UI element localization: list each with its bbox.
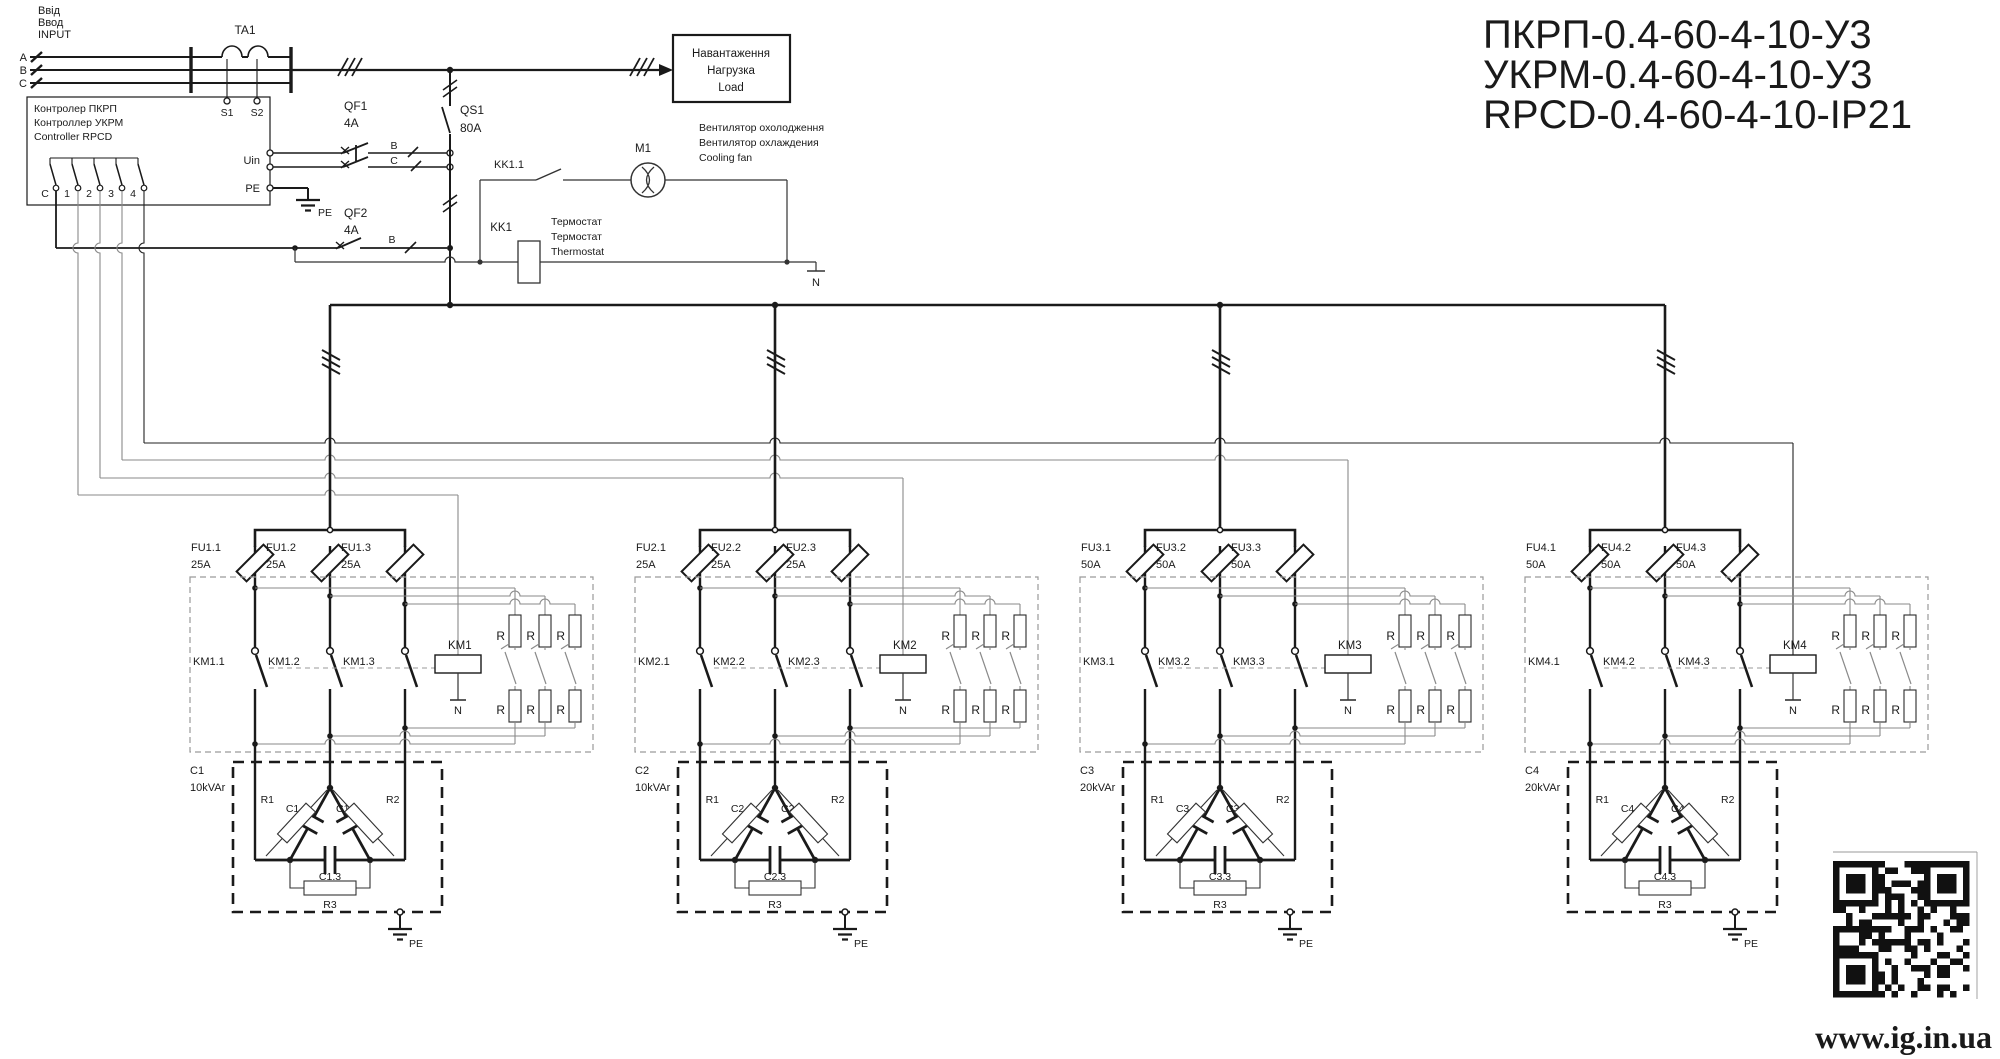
contact-blade: [406, 655, 417, 687]
terminal-2: [97, 185, 103, 191]
capacitor-lead: [759, 788, 775, 817]
terminal-circle: [1217, 648, 1224, 655]
schematic-page: Ввід Ввод INPUT A B C TA1 S1 S2 Контроле…: [0, 0, 2000, 1059]
contact-label: KM1.3: [343, 656, 375, 668]
resistor-tap-line: [1665, 591, 1880, 596]
load-label-ru: Нагрузка: [707, 65, 755, 77]
junction-dot: [772, 733, 778, 739]
discharge-resistor-label: R1: [1151, 794, 1165, 806]
resistor-label: R: [1386, 629, 1395, 643]
fuse-rating: 50A: [1676, 559, 1696, 571]
contact-label: KM2.1: [638, 656, 670, 668]
terminal-circle: [397, 909, 403, 915]
qs1-blade: [442, 107, 450, 133]
pe-label: PE: [854, 938, 868, 950]
r3-label: R3: [1213, 899, 1227, 911]
contact-label: KM2.2: [713, 656, 745, 668]
out-c-label: C: [41, 188, 49, 200]
breaker-qf2: QF2 4A B: [56, 191, 447, 253]
terminal-circle: [327, 527, 332, 532]
junction-dot: [1587, 741, 1593, 747]
resistor-r-top: [1399, 615, 1411, 647]
contact-label: KM3.3: [1233, 656, 1265, 668]
fuse-label: FU4.1: [1526, 542, 1556, 554]
bank-power: 20kVAr: [1080, 782, 1116, 794]
junction-dot: [1737, 725, 1743, 731]
aux-contact-tick: [1866, 644, 1874, 649]
qs1-label: QS1: [460, 103, 484, 117]
qs1-rating: 80A: [460, 121, 481, 135]
aux-contact-tick: [1896, 644, 1904, 649]
resistor-label: R: [526, 703, 535, 717]
resistor-label: R: [971, 703, 980, 717]
aux-contact-blade: [1870, 652, 1881, 684]
coil-KM2: [880, 655, 926, 673]
capacitor-C2.3-plates: [770, 846, 780, 874]
controller-name-uk: Контролер ПКРП: [34, 103, 117, 115]
bank-power: 20kVAr: [1525, 782, 1561, 794]
thermostat-fan-circuit: N KK1 Термостат Термостат Thermostat KK1…: [295, 122, 825, 289]
resistor-return-line: [1145, 739, 1405, 744]
controller-box: Контролер ПКРП Контроллер УКРМ Controlle…: [27, 97, 332, 219]
aux-contact-blade: [565, 652, 576, 684]
resistor-label: R: [496, 703, 505, 717]
contactor-module-outline: [190, 577, 593, 752]
fuse-label: FU2.3: [786, 542, 816, 554]
resistor-r-bottom: [1844, 690, 1856, 722]
resistor-r-bottom: [1429, 690, 1441, 722]
input-section: Ввід Ввод INPUT A B C TA1 S1 S2: [19, 5, 291, 119]
control-wire-1: [73, 191, 458, 655]
pe-label: PE: [409, 938, 423, 950]
qf1-rating: 4A: [344, 116, 359, 130]
fuse-rating: 25A: [191, 559, 211, 571]
coil-KM3: [1325, 655, 1371, 673]
resistor-R2: [1234, 803, 1272, 843]
control-wire-2: [95, 191, 903, 655]
ct-leads: [227, 59, 257, 98]
bank-label: C2: [635, 765, 649, 777]
contactor-module-outline: [1525, 577, 1928, 752]
junction-dot: [1292, 725, 1298, 731]
coil-label: KM1: [448, 640, 472, 652]
fan-label-uk: Вентилятор охолодження: [699, 122, 824, 134]
contact-label: KM3.1: [1083, 656, 1115, 668]
contact-blade: [701, 655, 712, 687]
qr-code: [1833, 861, 1970, 998]
resistor-tap-line: [1220, 591, 1435, 596]
thermostat-label-en: Thermostat: [551, 246, 604, 258]
resistor-label: R: [1416, 703, 1425, 717]
terminal-circle: [327, 648, 334, 655]
qf1-phase-b-label: B: [390, 140, 397, 152]
thermostat-kk1: [518, 241, 540, 283]
fuse-label: FU2.2: [711, 542, 741, 554]
kk1-label: KK1: [490, 222, 512, 234]
title-block: ПКРП-0.4-60-4-10-У3 УКРМ-0.4-60-4-10-У3 …: [1483, 13, 1912, 137]
resistor-return-line: [775, 731, 990, 736]
branch-2: FU2.125AFU2.225AFU2.325AKM2.1KM2.2KM2.3K…: [635, 305, 1038, 950]
load-label-en: Load: [718, 82, 744, 94]
resistor-R2: [1679, 803, 1717, 843]
resistor-R3: [304, 881, 356, 895]
aux-contact-tick: [501, 644, 509, 649]
branch-1: FU1.125AFU1.225AFU1.325AKM1.1KM1.2KM1.3K…: [190, 305, 593, 950]
controller-output-blades: [50, 164, 144, 185]
fuse-label: FU4.3: [1676, 542, 1706, 554]
resistor-label: R: [556, 703, 565, 717]
resistor-R2: [789, 803, 827, 843]
bank-label: C3: [1080, 765, 1094, 777]
terminal-3: [119, 185, 125, 191]
contact-label: KM2.3: [788, 656, 820, 668]
terminal-circle: [847, 648, 854, 655]
terminal-circle: [1587, 648, 1594, 655]
fuse-label: FU3.2: [1156, 542, 1186, 554]
aux-contact-tick: [946, 644, 954, 649]
aux-contact-blade: [950, 652, 961, 684]
uin-terminal-2: [267, 164, 273, 170]
qf2-rating: 4A: [344, 223, 359, 237]
capacitor-lead: [314, 788, 330, 817]
aux-contact-tick: [561, 644, 569, 649]
fan-label-en: Cooling fan: [699, 152, 752, 164]
contact-blade: [1741, 655, 1752, 687]
resistor-R2: [344, 803, 382, 843]
fan-label-ru: Вентилятор охлаждения: [699, 137, 819, 149]
resistor-tap-line: [775, 591, 990, 596]
resistor-r-bottom: [954, 690, 966, 722]
discharge-resistor-label: R1: [261, 794, 275, 806]
uin-label: Uin: [243, 155, 260, 167]
resistor-label: R: [1001, 703, 1010, 717]
terminal-4: [141, 185, 147, 191]
resistor-label: R: [1891, 703, 1900, 717]
branch-4: FU4.150AFU4.250AFU4.350AKM4.1KM4.2KM4.3K…: [1525, 305, 1928, 950]
junction-dot: [772, 785, 778, 791]
aux-contact-blade: [1840, 652, 1851, 684]
fuse-rating: 50A: [1601, 559, 1621, 571]
contactor-module-outline: [635, 577, 1038, 752]
qr-modules: [1833, 861, 1970, 998]
junction-dot: [327, 733, 333, 739]
aux-contact-tick: [1836, 644, 1844, 649]
contact-label: KM4.3: [1678, 656, 1710, 668]
neutral-label: N: [812, 277, 820, 289]
contact-label: KM3.2: [1158, 656, 1190, 668]
contact-label: KM4.2: [1603, 656, 1635, 668]
distribution-bus: [330, 302, 1665, 308]
junction-dot: [1662, 785, 1668, 791]
resistor-r-bottom: [1014, 690, 1026, 722]
control-wire-horizontal: [122, 455, 1348, 460]
fuse-rating: 50A: [1081, 559, 1101, 571]
contact-blade: [1666, 655, 1677, 687]
control-wire-vertical: [95, 191, 100, 478]
fuse-rating: 50A: [1526, 559, 1546, 571]
junction-dot: [402, 725, 408, 731]
capacitor-lead: [1204, 788, 1220, 817]
input-label-ru: Ввод: [38, 17, 64, 29]
fuse-rating: 50A: [1231, 559, 1251, 571]
aux-contact-tick: [1006, 644, 1014, 649]
capacitor-C3.3-plates: [1215, 846, 1225, 874]
terminal-circle: [1662, 527, 1667, 532]
out-1-label: 1: [64, 188, 70, 200]
neutral-label: N: [1344, 705, 1352, 717]
title-line-2: УКРМ-0.4-60-4-10-У3: [1483, 53, 1872, 97]
resistor-label: R: [1446, 629, 1455, 643]
resistor-return-line: [330, 731, 545, 736]
junction-dot: [252, 741, 258, 747]
contact-blade: [851, 655, 862, 687]
resistor-r-top: [1459, 615, 1471, 647]
aux-contact-blade: [1395, 652, 1406, 684]
load-label-uk: Навантаження: [692, 48, 770, 60]
capacitor-C4.3-plates: [1660, 846, 1670, 874]
r3-label: R3: [768, 899, 782, 911]
resistor-label: R: [1446, 703, 1455, 717]
terminal-circle: [772, 648, 779, 655]
contact-label: KM4.1: [1528, 656, 1560, 668]
bank-label: C1: [190, 765, 204, 777]
resistor-r-top: [539, 615, 551, 647]
coil-label: KM4: [1783, 640, 1807, 652]
bank-power: 10kVAr: [635, 782, 671, 794]
fuse-label: FU1.2: [266, 542, 296, 554]
qf2-blade: [338, 238, 361, 248]
resistor-r-bottom: [509, 690, 521, 722]
discharge-resistor-label: R2: [831, 794, 845, 806]
resistor-r-top: [1014, 615, 1026, 647]
resistor-r-top: [984, 615, 996, 647]
bank-label: C4: [1525, 765, 1539, 777]
control-wire-horizontal: [78, 490, 458, 495]
aux-contact-blade: [505, 652, 516, 684]
controller-pe-label: PE: [245, 183, 260, 195]
resistor-label: R: [1416, 629, 1425, 643]
resistor-R3: [1639, 881, 1691, 895]
resistor-label: R: [1831, 629, 1840, 643]
fuse-rating: 25A: [341, 559, 361, 571]
discharge-resistor-label: R2: [386, 794, 400, 806]
aux-contact-blade: [1455, 652, 1466, 684]
qf2-phase-b-label: B: [388, 234, 395, 246]
phase-c-label: C: [19, 78, 27, 90]
resistor-r-top: [1874, 615, 1886, 647]
terminal-circle: [1662, 648, 1669, 655]
pe-terminal: [267, 185, 273, 191]
resistor-tap-line: [1740, 599, 1910, 604]
ct-label: TA1: [234, 23, 255, 37]
terminal-1: [75, 185, 81, 191]
pe-ground-label: PE: [318, 207, 332, 219]
control-wire-horizontal: [144, 438, 1793, 443]
resistor-r-top: [1904, 615, 1916, 647]
controller-name-ru: Контроллер УКРМ: [34, 117, 123, 129]
terminal-circle: [842, 909, 848, 915]
resistor-r-bottom: [569, 690, 581, 722]
fuse-rating: 25A: [266, 559, 286, 571]
breaker-qf1: QF1 4A B C: [273, 99, 453, 171]
phase-lines: [30, 57, 291, 83]
contact-blade: [776, 655, 787, 687]
website-link: www.ig.in.ua: [1815, 1019, 1992, 1055]
fuse-label: FU4.2: [1601, 542, 1631, 554]
junction-dot: [697, 741, 703, 747]
coil-KM1: [435, 655, 481, 673]
bank-power: 10kVAr: [190, 782, 226, 794]
terminal-circle: [1287, 909, 1293, 915]
aux-contact-tick: [531, 644, 539, 649]
aux-contact-tick: [1391, 644, 1399, 649]
ct-terminal-s1: [224, 98, 230, 104]
resistor-r-bottom: [539, 690, 551, 722]
control-wire-4: [139, 191, 1793, 655]
control-wire-horizontal: [100, 473, 903, 478]
terminal-circle: [1732, 909, 1738, 915]
input-label-en: INPUT: [38, 29, 71, 41]
input-label-uk: Ввід: [38, 5, 61, 17]
contact-label: KM1.1: [193, 656, 225, 668]
control-wire-3: [117, 191, 1348, 655]
resistor-label: R: [1861, 703, 1870, 717]
contact-blade: [331, 655, 342, 687]
qf1-phase-c-label: C: [390, 155, 398, 167]
aux-contact-tick: [976, 644, 984, 649]
resistor-label: R: [496, 629, 505, 643]
branch-3: FU3.150AFU3.250AFU3.350AKM3.1KM3.2KM3.3K…: [1080, 305, 1483, 950]
resistor-return-line: [1590, 739, 1850, 744]
ct-windings: [222, 46, 268, 57]
capacitor-lead: [1649, 788, 1665, 817]
resistor-return-line: [700, 739, 960, 744]
resistor-return-line: [255, 739, 515, 744]
resistor-label: R: [971, 629, 980, 643]
fuse-rating: 25A: [636, 559, 656, 571]
therm-line: [295, 257, 816, 271]
earth-ground-icon: [296, 200, 320, 211]
controller-output-bracket: [50, 158, 138, 164]
title-line-1: ПКРП-0.4-60-4-10-У3: [1483, 13, 1872, 57]
out-4-label: 4: [130, 188, 136, 200]
schematic-canvas: Ввід Ввод INPUT A B C TA1 S1 S2 Контроле…: [0, 0, 2000, 1059]
terminal-circle: [252, 648, 259, 655]
coil-KM4: [1770, 655, 1816, 673]
junction-dot: [1662, 733, 1668, 739]
resistor-r-top: [509, 615, 521, 647]
resistor-label: R: [1891, 629, 1900, 643]
coil-label: KM3: [1338, 640, 1362, 652]
junction-dot: [1142, 741, 1148, 747]
r3-label: R3: [323, 899, 337, 911]
uin-terminal-1: [267, 150, 273, 156]
resistor-r-bottom: [1874, 690, 1886, 722]
resistor-r-bottom: [984, 690, 996, 722]
neutral-label: N: [1789, 705, 1797, 717]
pe-wire: [273, 188, 308, 200]
terminal-c: [53, 185, 59, 191]
contact-blade: [1221, 655, 1232, 687]
resistor-r-bottom: [1904, 690, 1916, 722]
title-line-3: RPCD-0.4-60-4-10-IP21: [1483, 93, 1912, 137]
resistor-r-top: [1844, 615, 1856, 647]
aux-contact-blade: [1010, 652, 1021, 684]
resistor-tap-line: [850, 599, 1020, 604]
resistor-label: R: [1386, 703, 1395, 717]
aux-contact-blade: [1900, 652, 1911, 684]
discharge-resistor-label: R1: [1596, 794, 1610, 806]
resistor-label: R: [1831, 703, 1840, 717]
fuse-label: FU3.1: [1081, 542, 1111, 554]
resistor-return-line: [1665, 731, 1880, 736]
junction-dot: [447, 245, 453, 251]
resistor-label: R: [556, 629, 565, 643]
neutral-label: N: [454, 705, 462, 717]
m1-label: M1: [635, 143, 651, 155]
junction-dot: [327, 785, 333, 791]
capacitor-C1.3-plates: [325, 846, 335, 874]
aux-contact-blade: [535, 652, 546, 684]
pe-label: PE: [1744, 938, 1758, 950]
aux-contact-blade: [1425, 652, 1436, 684]
neutral-label: N: [899, 705, 907, 717]
discharge-resistor-label: R2: [1721, 794, 1735, 806]
ct-s1-label: S1: [221, 107, 234, 119]
fuse-label: FU1.3: [341, 542, 371, 554]
qr-block: www.ig.in.ua: [1815, 852, 1992, 1055]
resistor-label: R: [941, 629, 950, 643]
contactor-module-outline: [1080, 577, 1483, 752]
resistor-r-top: [1429, 615, 1441, 647]
controller-name-en: Controller RPCD: [34, 131, 113, 143]
phase-a-label: A: [20, 52, 28, 64]
thermostat-label-ru: Термостат: [551, 231, 602, 243]
terminal-circle: [1292, 648, 1299, 655]
resistor-tap-line: [405, 599, 575, 604]
ct-s2-label: S2: [251, 107, 264, 119]
ct-terminal-s2: [254, 98, 260, 104]
terminal-circle: [697, 648, 704, 655]
resistor-label: R: [1001, 629, 1010, 643]
resistor-tap-line: [1295, 599, 1465, 604]
resistor-label: R: [526, 629, 535, 643]
main-line: QS1 80A: [291, 58, 673, 308]
contact-label: KM1.2: [268, 656, 300, 668]
contact-blade: [256, 655, 267, 687]
aux-contact-blade: [980, 652, 991, 684]
load-box: Навантаження Нагрузка Load: [673, 35, 790, 102]
resistor-tap-line: [330, 591, 545, 596]
junction-dot: [847, 725, 853, 731]
resistor-r-top: [954, 615, 966, 647]
fuse-label: FU2.1: [636, 542, 666, 554]
contact-blade: [1146, 655, 1157, 687]
motor-m1-icon: [631, 163, 665, 197]
qf1-label: QF1: [344, 99, 368, 113]
resistor-label: R: [941, 703, 950, 717]
terminal-circle: [402, 648, 409, 655]
contact-blade: [1296, 655, 1307, 687]
control-wire-vertical: [139, 191, 144, 443]
phase-b-label: B: [20, 65, 27, 77]
aux-contact-tick: [1421, 644, 1429, 649]
discharge-resistor-label: R1: [706, 794, 720, 806]
contact-blade: [1591, 655, 1602, 687]
resistor-r-bottom: [1459, 690, 1471, 722]
fuse-rating: 50A: [1156, 559, 1176, 571]
discharge-resistor-label: R2: [1276, 794, 1290, 806]
